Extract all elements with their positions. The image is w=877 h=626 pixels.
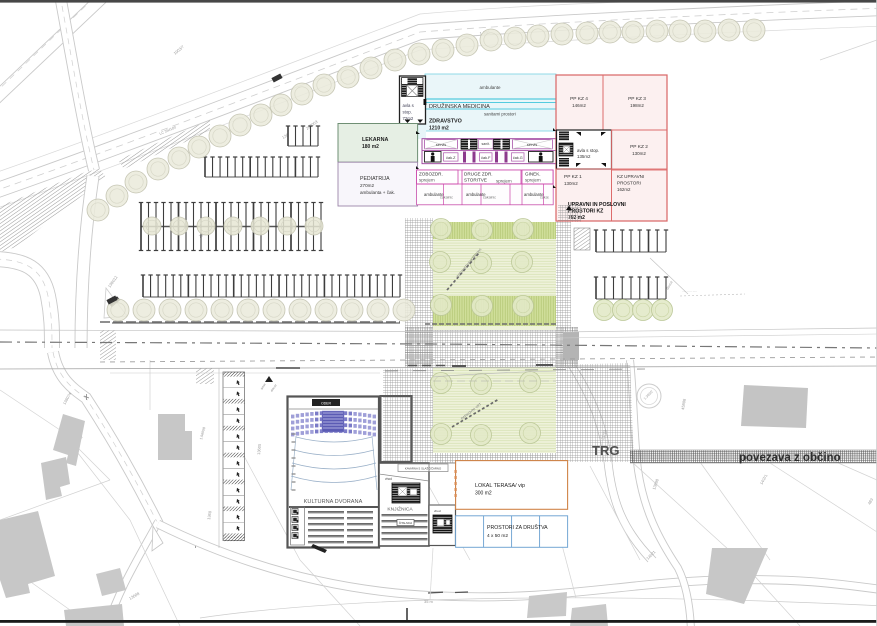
- svg-text:4 x 50 m2: 4 x 50 m2: [487, 533, 508, 539]
- svg-text:35 m: 35 m: [424, 599, 434, 604]
- svg-text:130m2: 130m2: [564, 181, 578, 186]
- svg-text:STORITVE: STORITVE: [464, 178, 487, 183]
- svg-text:sprejem: sprejem: [496, 179, 512, 184]
- svg-text:ambulante: ambulante: [479, 85, 501, 90]
- svg-text:KZ UPRAVNI: KZ UPRAVNI: [617, 174, 644, 179]
- svg-text:GINEK.: GINEK.: [525, 172, 541, 177]
- svg-text:sprejem: sprejem: [419, 178, 435, 183]
- svg-text:ZDRAVSTVO: ZDRAVSTVO: [429, 119, 462, 125]
- svg-text:sanitarni prostori: sanitarni prostori: [484, 112, 516, 117]
- svg-text:čak.G: čak.G: [513, 156, 523, 160]
- svg-text:čakalnic: čakalnic: [483, 196, 496, 200]
- svg-text:DRUGE ZDR.: DRUGE ZDR.: [464, 172, 493, 177]
- svg-text:135m2: 135m2: [577, 154, 591, 159]
- svg-text:LOKAL TERASA/ vip: LOKAL TERASA/ vip: [475, 483, 525, 489]
- svg-text:servis: servis: [527, 142, 537, 147]
- svg-text:PROSTORI ZA DRUŠTVA: PROSTORI ZA DRUŠTVA: [487, 524, 548, 531]
- svg-text:TRG: TRG: [592, 443, 619, 458]
- svg-text:čak.Z: čak.Z: [446, 156, 456, 160]
- svg-text:ambulanta + čak.: ambulanta + čak.: [360, 190, 395, 195]
- svg-text:PEDIATRIJA: PEDIATRIJA: [360, 176, 390, 182]
- svg-text:čakalnic: čakalnic: [440, 196, 453, 200]
- svg-text:180 m2: 180 m2: [362, 144, 379, 150]
- svg-text:servis: servis: [436, 142, 446, 147]
- svg-text:13605: 13605: [256, 443, 262, 455]
- svg-text:300 m2: 300 m2: [475, 491, 492, 497]
- svg-text:1210 m2: 1210 m2: [429, 126, 449, 132]
- svg-text:KAVARNA S SLAŠČIČARNO: KAVARNA S SLAŠČIČARNO: [405, 466, 442, 471]
- svg-text:ZOBOZDR.: ZOBOZDR.: [419, 172, 443, 177]
- svg-text:PP KZ 4: PP KZ 4: [570, 96, 588, 102]
- svg-text:130m2: 130m2: [632, 151, 646, 156]
- svg-text:..... ..... .....: ..... ..... .....: [682, 289, 697, 293]
- svg-text:čak.F: čak.F: [481, 156, 491, 160]
- svg-text:avla s stop.: avla s stop.: [577, 148, 599, 153]
- svg-text:čakal.: čakal.: [540, 196, 549, 200]
- svg-text:PP KZ 3: PP KZ 3: [628, 96, 646, 102]
- svg-text:162m2: 162m2: [617, 187, 631, 192]
- svg-text:vhod: vhod: [385, 477, 392, 481]
- svg-text:stop.: stop.: [403, 110, 412, 115]
- svg-text:PP KZ 2: PP KZ 2: [630, 144, 648, 150]
- svg-text:PP KZ 1: PP KZ 1: [564, 174, 582, 180]
- svg-text:povezava z občino: povezava z občino: [739, 452, 841, 464]
- svg-text:KULTURNA DVORANA: KULTURNA DVORANA: [304, 499, 363, 505]
- svg-text:146m2: 146m2: [572, 103, 586, 108]
- svg-text:PROSTORI: PROSTORI: [617, 181, 641, 186]
- svg-text:LEKARNA: LEKARNA: [362, 137, 388, 143]
- svg-text:ODER: ODER: [321, 402, 331, 406]
- svg-text:sanit.: sanit.: [482, 142, 491, 146]
- svg-text:270m2: 270m2: [360, 183, 374, 188]
- svg-text:vhod: vhod: [434, 509, 441, 513]
- svg-text:198m2: 198m2: [630, 103, 644, 108]
- svg-text:DRUŽINSKA MEDICINA: DRUŽINSKA MEDICINA: [429, 102, 490, 110]
- svg-text:avla s: avla s: [403, 103, 414, 108]
- svg-text:sprejem: sprejem: [525, 178, 541, 183]
